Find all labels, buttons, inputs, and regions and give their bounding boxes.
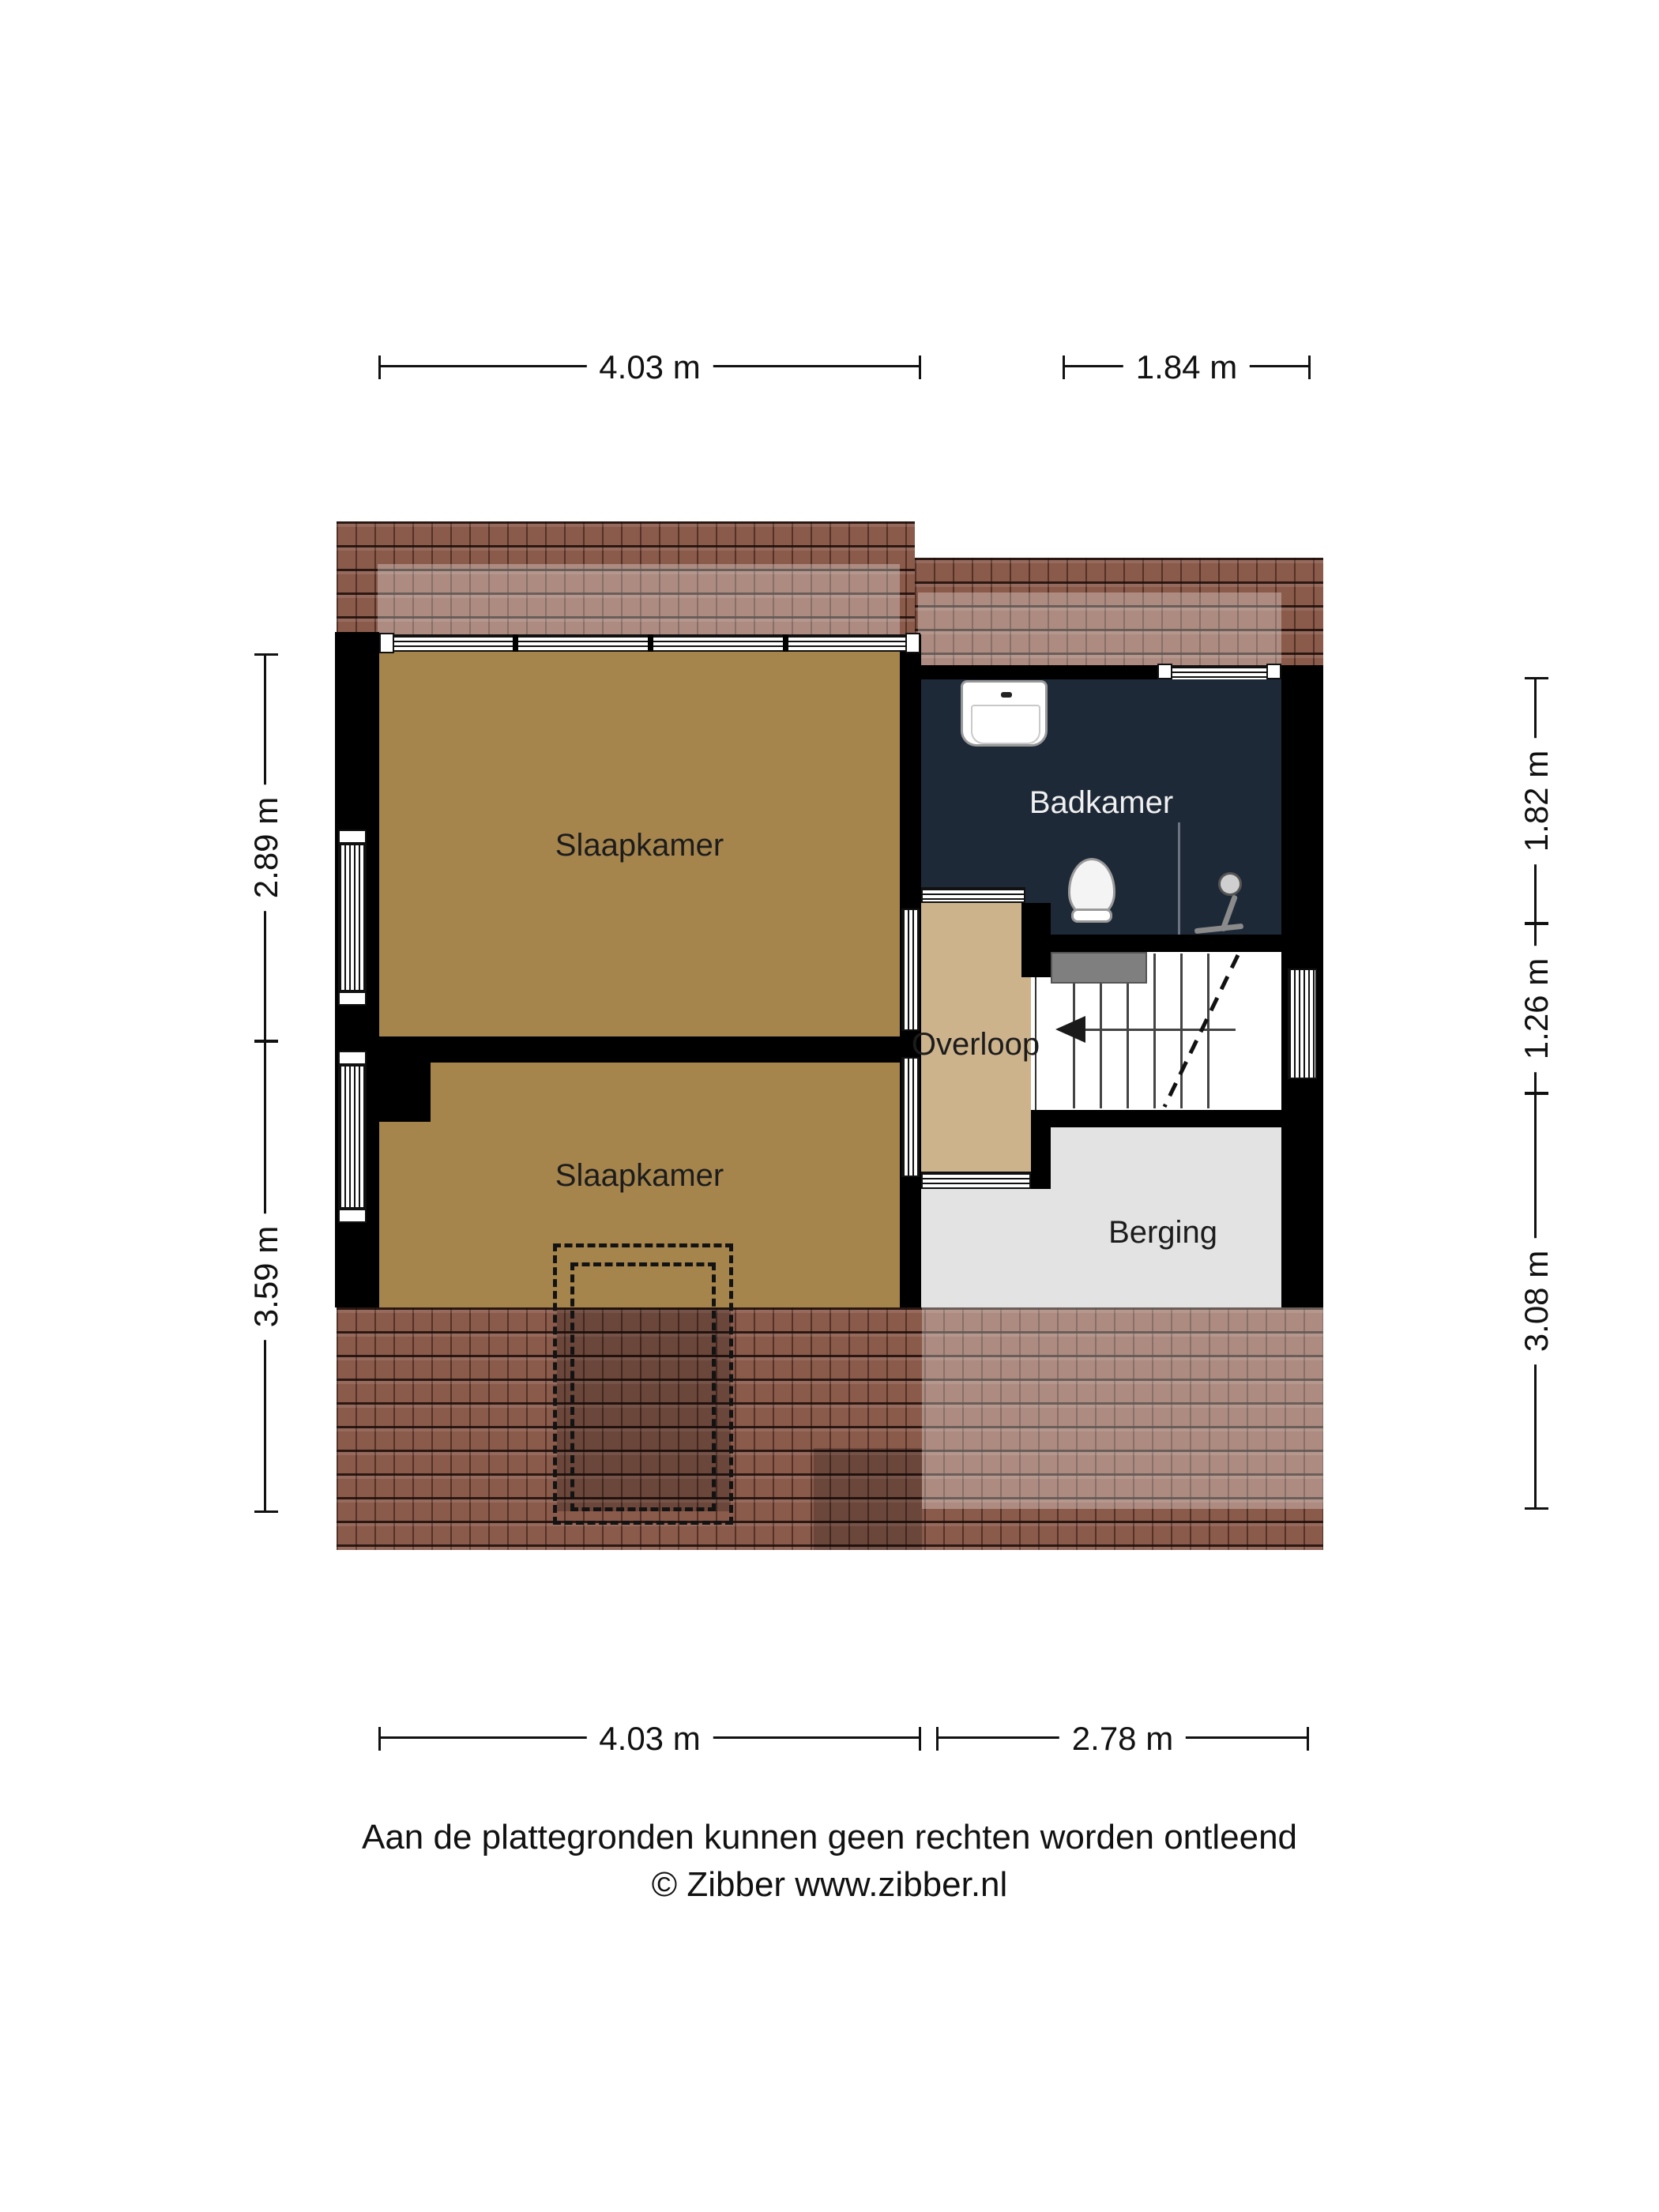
dimension-label: 2.89 m xyxy=(247,784,285,911)
dimension-bottom-left: 4.03 m xyxy=(379,1736,920,1739)
window-stairwell-east xyxy=(1288,969,1317,1079)
door-bedroom2-overloop xyxy=(901,1057,920,1177)
wall-bedroom-divider xyxy=(335,1036,920,1063)
room-label-overloop: Overloop xyxy=(908,1027,1043,1063)
dimension-right-top: 1.82 m xyxy=(1534,678,1537,924)
disclaimer-text: Aan de plattegronden kunnen geen rechten… xyxy=(0,1814,1659,1861)
window-cap xyxy=(338,991,367,1006)
window-cap xyxy=(379,633,394,653)
window-cap xyxy=(905,633,920,653)
sink-bowl xyxy=(971,705,1040,744)
wall-chimney-block xyxy=(378,1063,431,1122)
sink-icon xyxy=(961,680,1048,747)
roof-shadow-patch xyxy=(814,1448,922,1550)
dimension-label: 1.26 m xyxy=(1518,945,1556,1071)
wall-berging-left xyxy=(1031,1110,1051,1189)
dimension-label: 1.82 m xyxy=(1518,737,1556,863)
dimension-right-middle: 1.26 m xyxy=(1534,924,1537,1093)
dimension-top-left: 4.03 m xyxy=(379,365,920,367)
window-mullion xyxy=(648,634,653,652)
dimension-label: 3.08 m xyxy=(1518,1238,1556,1364)
window-mullion xyxy=(513,634,518,652)
dimension-right-bottom: 3.08 m xyxy=(1534,1093,1537,1509)
sink-tap xyxy=(1001,692,1012,698)
dimension-label: 3.59 m xyxy=(247,1213,285,1340)
dimension-label: 4.03 m xyxy=(586,348,713,386)
window-cap xyxy=(1266,664,1281,679)
wall-bathroom-north xyxy=(921,665,1157,679)
toilet-seat xyxy=(1071,908,1112,923)
room-label-badkamer: Badkamer xyxy=(921,785,1281,821)
dimension-top-right: 1.84 m xyxy=(1063,365,1310,367)
shower-screen xyxy=(1178,822,1180,935)
room-berging-floor-extension xyxy=(921,1189,1044,1307)
radiator xyxy=(1051,952,1147,984)
window-cap xyxy=(338,1209,367,1223)
roof-overlay-bottom-right xyxy=(922,1307,1323,1509)
dimension-left-top: 2.89 m xyxy=(264,654,266,1041)
dimension-label: 4.03 m xyxy=(586,1720,713,1758)
dimension-bottom-right: 2.78 m xyxy=(937,1736,1308,1739)
room-label-berging: Berging xyxy=(1044,1215,1281,1251)
window-bedroom2-west xyxy=(338,1065,367,1209)
wall-bathroom-south xyxy=(1025,935,1281,952)
room-label-slaapkamer-2: Slaapkamer xyxy=(379,1158,900,1194)
window-mullion xyxy=(783,634,788,652)
door-overloop-berging xyxy=(921,1172,1031,1189)
window-bedroom1-west xyxy=(338,844,367,991)
copyright-text: © Zibber www.zibber.nl xyxy=(0,1861,1659,1909)
dimension-label: 1.84 m xyxy=(1123,348,1250,386)
floorplan-page: Slaapkamer Badkamer Overloop Slaapkamer … xyxy=(0,0,1659,2212)
dimension-left-bottom: 3.59 m xyxy=(264,1041,266,1512)
door-badkamer xyxy=(921,887,1025,903)
disclaimer-footer: Aan de plattegronden kunnen geen rechten… xyxy=(0,1814,1659,1909)
door-bedroom1-overloop xyxy=(901,908,920,1031)
shower-icon xyxy=(1218,872,1242,896)
dormer-dashed-inner xyxy=(570,1262,716,1511)
window-cap xyxy=(1157,664,1172,679)
window-bathroom-north xyxy=(1171,665,1268,678)
window-cap xyxy=(338,1051,367,1065)
window-cap xyxy=(338,829,367,844)
roof-overlay-top-right xyxy=(918,592,1281,665)
wall-stairs-south xyxy=(1031,1110,1323,1127)
room-label-slaapkamer-1: Slaapkamer xyxy=(379,828,900,863)
dimension-label: 2.78 m xyxy=(1059,1720,1186,1758)
roof-overlay-top-left xyxy=(378,564,900,634)
